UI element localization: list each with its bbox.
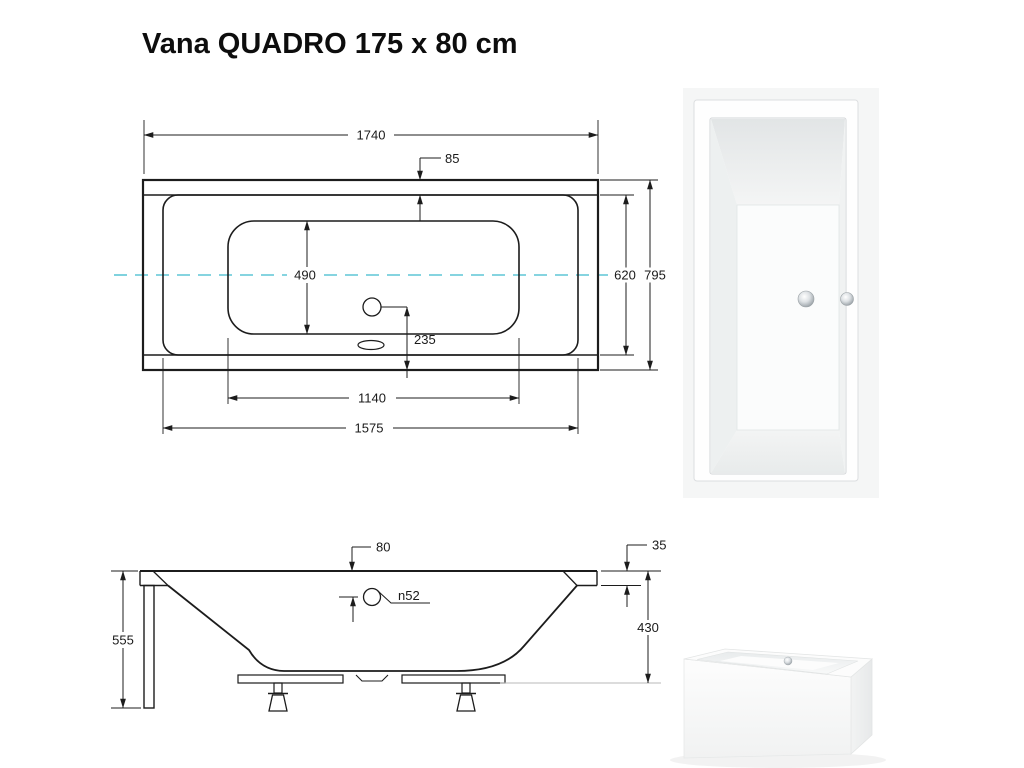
side-support-rail-left xyxy=(238,675,343,683)
side-view-drawing: n52 80 35 555 430 xyxy=(104,538,667,712)
plan-drain-circle xyxy=(363,298,381,316)
dim-drain-top-offset: 80 xyxy=(376,540,390,555)
dim-inner-width: 620 xyxy=(614,268,636,283)
side-foot-right xyxy=(456,683,476,711)
dim-outer-length: 1740 xyxy=(357,128,386,143)
dim-basin-length: 1140 xyxy=(358,391,386,406)
dim-rim-width: 85 xyxy=(445,151,459,166)
photo-drain-chrome xyxy=(798,291,814,307)
side-bowl-profile xyxy=(168,586,577,672)
dim-drain-diameter: n52 xyxy=(398,588,420,603)
dim-basin-width: 490 xyxy=(294,268,316,283)
photo-3d-overflow-chrome xyxy=(784,657,792,665)
page: Vana QUADRO 175 x 80 cm xyxy=(0,0,1024,768)
dim-body-depth: 430 xyxy=(637,620,659,635)
technical-drawing-canvas: 1740 85 490 235 620 xyxy=(0,0,1024,768)
side-support-rail-right xyxy=(402,675,505,683)
side-foot-left xyxy=(268,683,288,711)
plan-overflow-slot xyxy=(358,341,384,350)
plan-basin-edge xyxy=(228,221,519,334)
tub-perspective-photo xyxy=(670,649,886,768)
side-drain-recess xyxy=(356,675,388,681)
dim-outer-width: 795 xyxy=(644,268,666,283)
photo-basin-floor xyxy=(737,205,839,430)
tub-top-photo xyxy=(683,88,879,498)
photo-overflow-chrome xyxy=(841,293,854,306)
dim-total-height: 555 xyxy=(112,633,134,648)
plan-view-drawing: 1740 85 490 235 620 xyxy=(114,120,671,436)
side-skirt-panel xyxy=(144,586,154,709)
dim-rim-height: 35 xyxy=(652,538,666,553)
dim-inner-length: 1575 xyxy=(355,421,384,436)
dim-drain-offset: 235 xyxy=(414,332,436,347)
side-drain-circle xyxy=(364,589,381,606)
